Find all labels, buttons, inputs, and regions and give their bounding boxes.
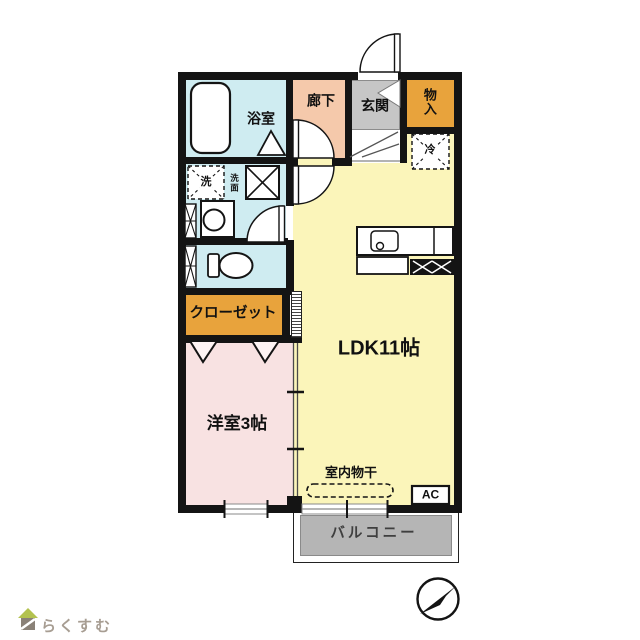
label-closet: クローゼット	[190, 306, 277, 321]
label-ldk: LDK11帖	[338, 339, 420, 360]
label-western-room: 洋室3帖	[207, 415, 267, 433]
entrance-step-area	[352, 130, 400, 163]
label-hallway: 廊下	[307, 94, 335, 109]
wall-hall-entrance	[345, 72, 352, 163]
logo-text: らくすむ	[41, 615, 113, 636]
label-refrigerator: 冷	[424, 145, 437, 157]
wall-bath-hall	[286, 72, 293, 164]
duct-hatch	[291, 291, 302, 338]
entrance-door-icon	[360, 34, 400, 72]
wall-top-right	[398, 72, 462, 80]
wall-slider-bottom	[287, 496, 302, 505]
label-balcony: バルコニー	[330, 526, 417, 541]
wall-closet-right	[282, 293, 290, 338]
wall-top-left	[178, 72, 358, 80]
wall-bottom	[178, 505, 462, 513]
label-storage: 物入	[422, 88, 436, 116]
wall-storage-bottom	[400, 127, 462, 134]
wall-right	[454, 72, 462, 513]
label-washer: 洗	[200, 177, 213, 189]
label-washbasin: 洗面	[230, 174, 239, 193]
wall-step-right	[400, 127, 407, 163]
wall-wash-toilet	[184, 238, 288, 245]
label-bathroom: 浴室	[247, 112, 275, 127]
label-entrance: 玄関	[361, 99, 389, 114]
logo-house-icon	[18, 608, 38, 630]
compass-icon	[418, 579, 459, 620]
floorplan-page: 浴室 廊下 玄関 物入 冷 洗 洗面 クローゼット LDK11帖 洋室3帖 室内…	[0, 0, 640, 640]
wall-entrance-storage	[400, 72, 407, 134]
wall-toilet-closet	[178, 288, 288, 295]
wall-bath-wash	[178, 157, 288, 164]
wall-closet-bottom	[178, 335, 290, 343]
label-indoor-drying: 室内物干	[325, 466, 377, 480]
label-ac: AC	[422, 489, 439, 502]
wall-mid-upper	[286, 164, 294, 206]
